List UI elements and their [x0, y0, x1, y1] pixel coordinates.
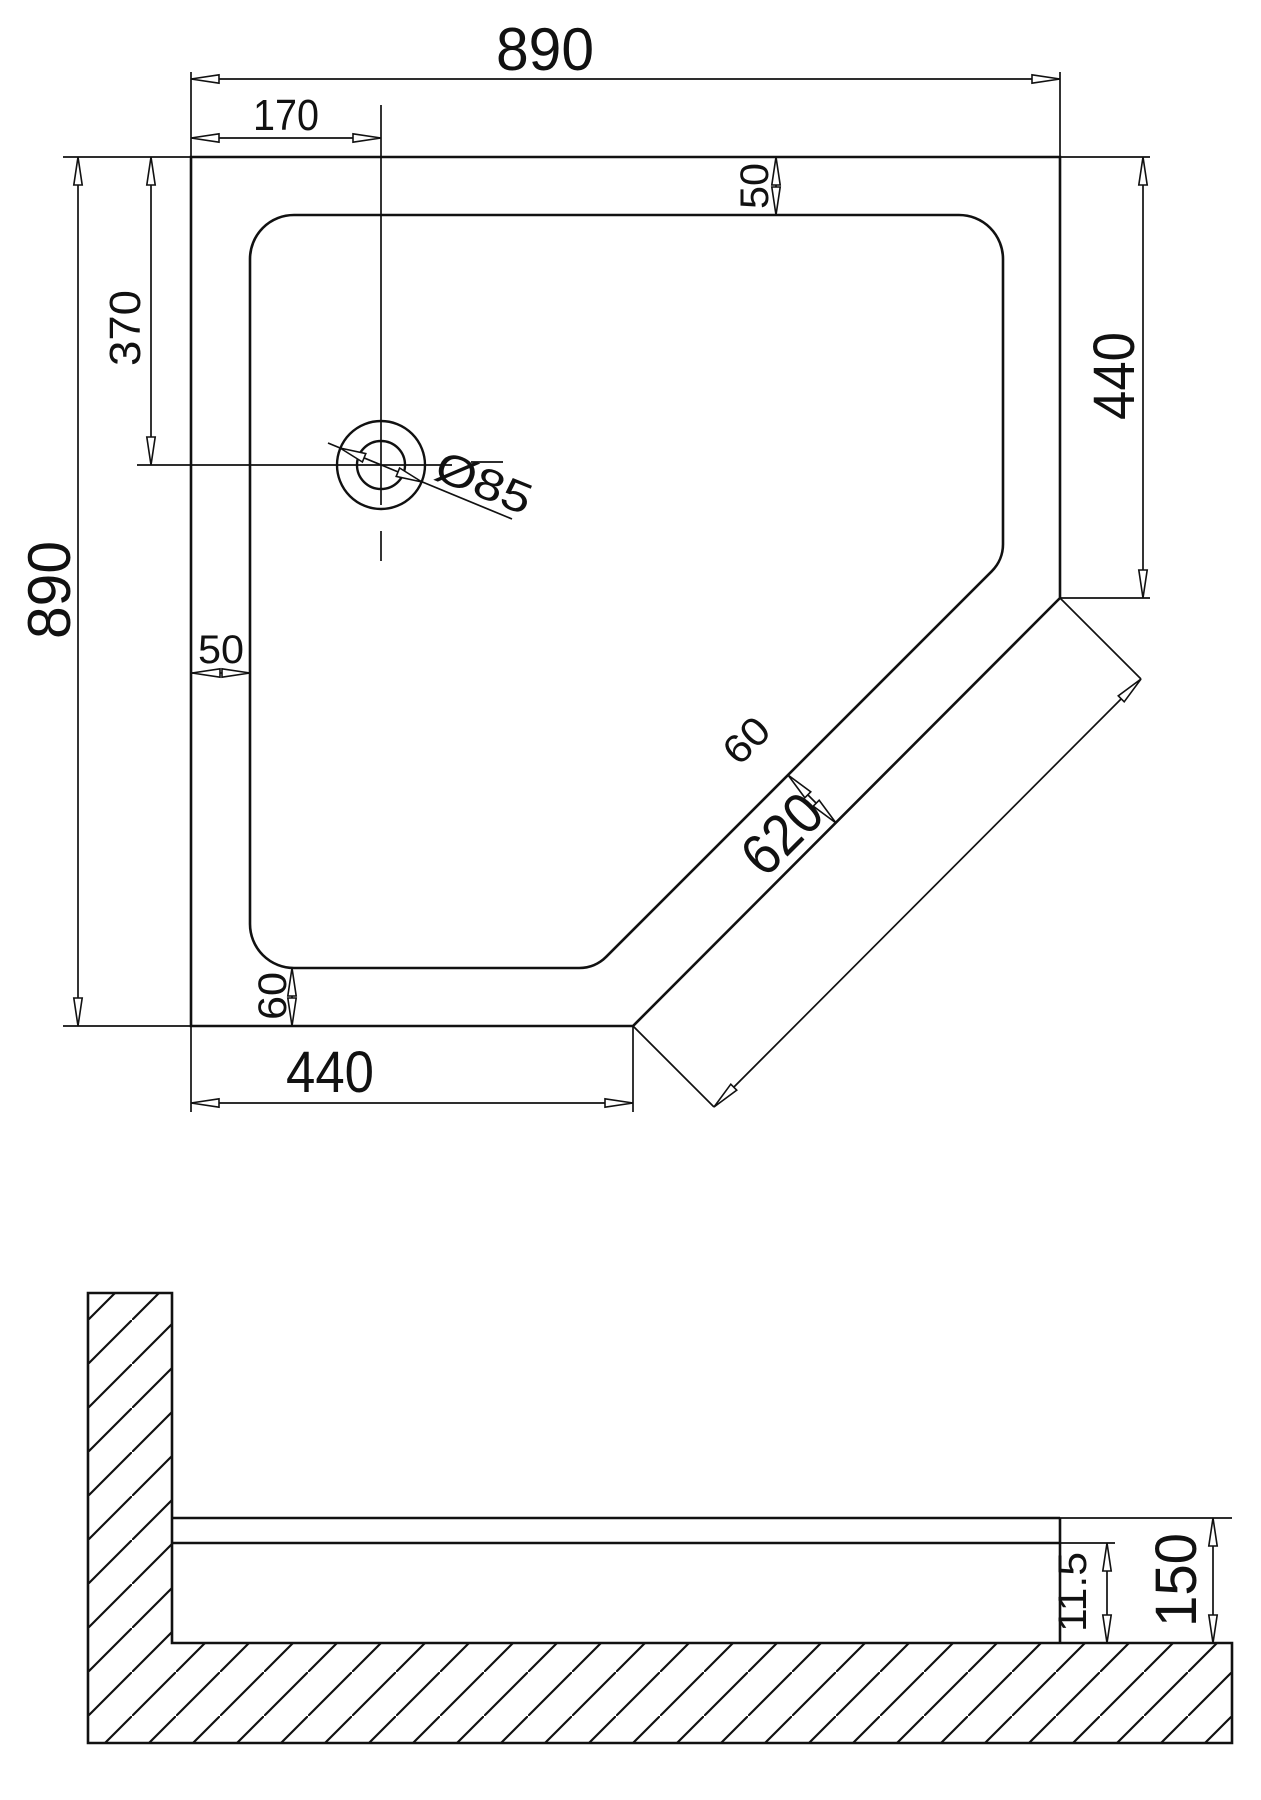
label-150: 150: [1144, 1533, 1209, 1627]
label-890-left: 890: [16, 541, 83, 639]
plan-labels: 890 170 890 370 50 440 50 60 440 620 60 …: [16, 16, 1147, 1105]
tray-outer-outline: [191, 157, 1060, 1026]
section-labels: 11.5 150: [1051, 1533, 1209, 1632]
label-370: 370: [101, 290, 150, 366]
label-60-diagonal: 60: [714, 708, 779, 773]
label-drain-diameter: Ø85: [428, 442, 539, 525]
tray-section-profile: [172, 1518, 1060, 1643]
label-11-5: 11.5: [1051, 1552, 1095, 1632]
section-view: 11.5 150: [88, 1293, 1232, 1743]
label-50-top: 50: [733, 163, 777, 209]
dim-line-620-diagonal: [714, 679, 1141, 1107]
label-890-top: 890: [496, 16, 594, 83]
technical-drawing-canvas: 890 170 890 370 50 440 50 60 440 620 60 …: [0, 0, 1261, 1800]
drawing-svg: 890 170 890 370 50 440 50 60 440 620 60 …: [0, 0, 1261, 1800]
label-170: 170: [253, 91, 319, 140]
plan-view: 890 170 890 370 50 440 50 60 440 620 60 …: [16, 16, 1150, 1112]
label-440-right: 440: [1082, 332, 1147, 420]
ext-diagonal-upper: [1060, 598, 1141, 679]
label-50-left: 50: [198, 628, 244, 672]
label-60-bottom: 60: [251, 972, 295, 1020]
tray-inner-outline: [250, 215, 1003, 968]
ext-diagonal-lower: [633, 1026, 714, 1107]
label-620-diagonal: 620: [728, 780, 836, 888]
label-440-bottom: 440: [286, 1040, 374, 1105]
